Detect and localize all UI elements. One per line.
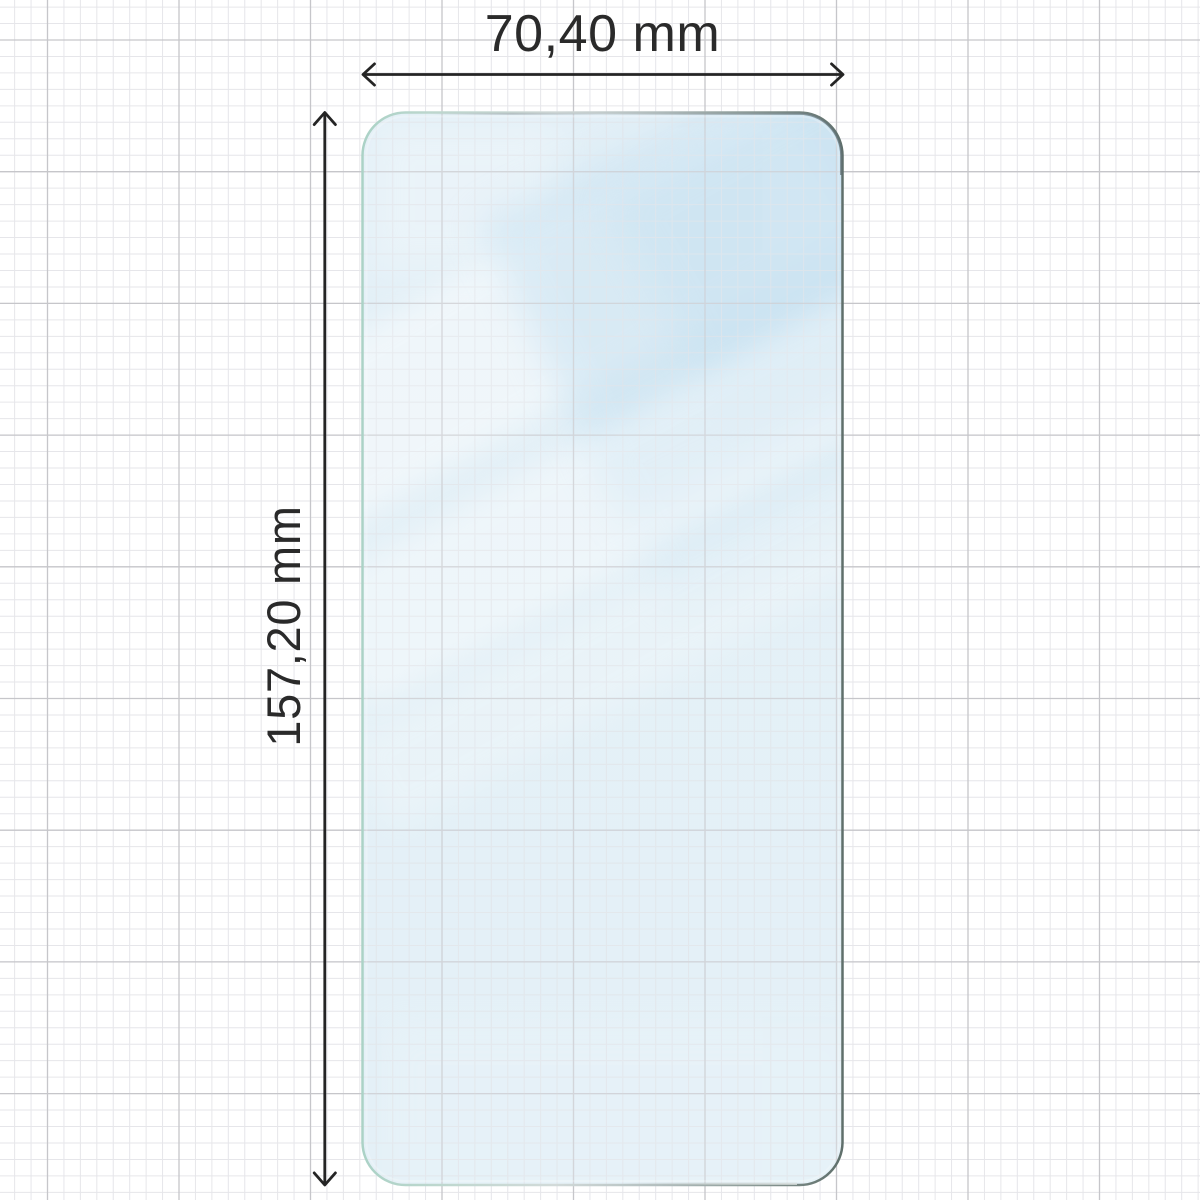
svg-text:157,20 mm: 157,20 mm — [257, 505, 310, 746]
svg-text:70,40 mm: 70,40 mm — [485, 5, 721, 63]
